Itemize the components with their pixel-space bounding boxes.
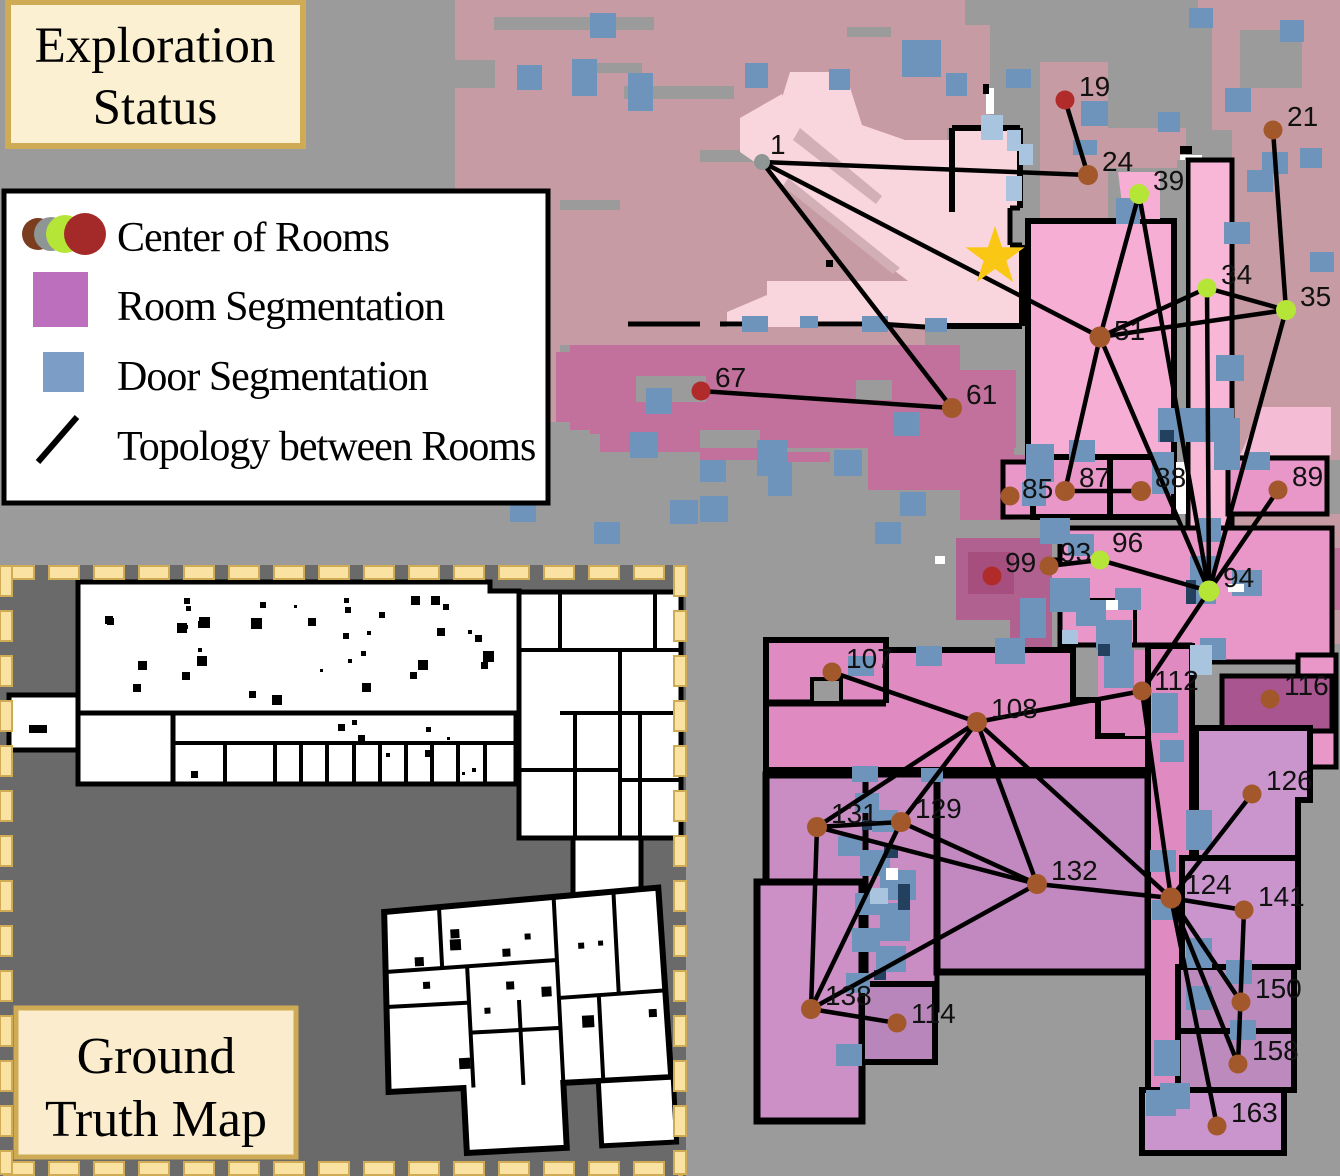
svg-text:21: 21 [1287, 101, 1318, 132]
svg-text:Truth Map: Truth Map [45, 1091, 267, 1148]
svg-text:158: 158 [1252, 1035, 1299, 1066]
svg-text:131: 131 [831, 798, 878, 829]
svg-text:Center of Rooms: Center of Rooms [117, 215, 389, 261]
svg-text:Door Segmentation: Door Segmentation [117, 354, 429, 400]
svg-text:94: 94 [1223, 562, 1254, 593]
svg-text:141: 141 [1258, 881, 1305, 912]
svg-text:51: 51 [1114, 315, 1145, 346]
svg-text:67: 67 [715, 362, 746, 393]
svg-text:96: 96 [1112, 527, 1143, 558]
svg-text:Room Segmentation: Room Segmentation [117, 284, 445, 330]
svg-text:138: 138 [825, 980, 872, 1011]
svg-text:34: 34 [1221, 259, 1252, 290]
svg-text:Exploration: Exploration [35, 18, 276, 74]
svg-text:163: 163 [1231, 1097, 1278, 1128]
svg-text:116: 116 [1284, 670, 1329, 701]
svg-text:99: 99 [1005, 547, 1036, 578]
svg-text:87: 87 [1079, 462, 1110, 493]
svg-text:61: 61 [966, 379, 997, 410]
svg-text:93: 93 [1060, 537, 1091, 568]
svg-text:132: 132 [1051, 855, 1098, 886]
svg-text:19: 19 [1079, 71, 1110, 102]
svg-text:88: 88 [1155, 462, 1186, 493]
svg-text:112: 112 [1154, 665, 1199, 696]
svg-text:24: 24 [1102, 146, 1133, 177]
svg-text:114: 114 [911, 998, 956, 1029]
svg-text:150: 150 [1255, 973, 1302, 1004]
svg-text:1: 1 [770, 129, 786, 160]
svg-text:107: 107 [846, 643, 893, 674]
svg-text:89: 89 [1292, 461, 1323, 492]
svg-text:108: 108 [991, 693, 1038, 724]
svg-text:Status: Status [93, 80, 218, 136]
svg-text:39: 39 [1153, 165, 1184, 196]
svg-text:126: 126 [1266, 765, 1313, 796]
svg-text:Topology between Rooms: Topology between Rooms [117, 424, 535, 470]
svg-text:85: 85 [1022, 473, 1053, 504]
svg-text:124: 124 [1185, 869, 1232, 900]
svg-text:Ground: Ground [77, 1028, 236, 1085]
svg-text:35: 35 [1300, 281, 1331, 312]
svg-text:129: 129 [915, 793, 962, 824]
